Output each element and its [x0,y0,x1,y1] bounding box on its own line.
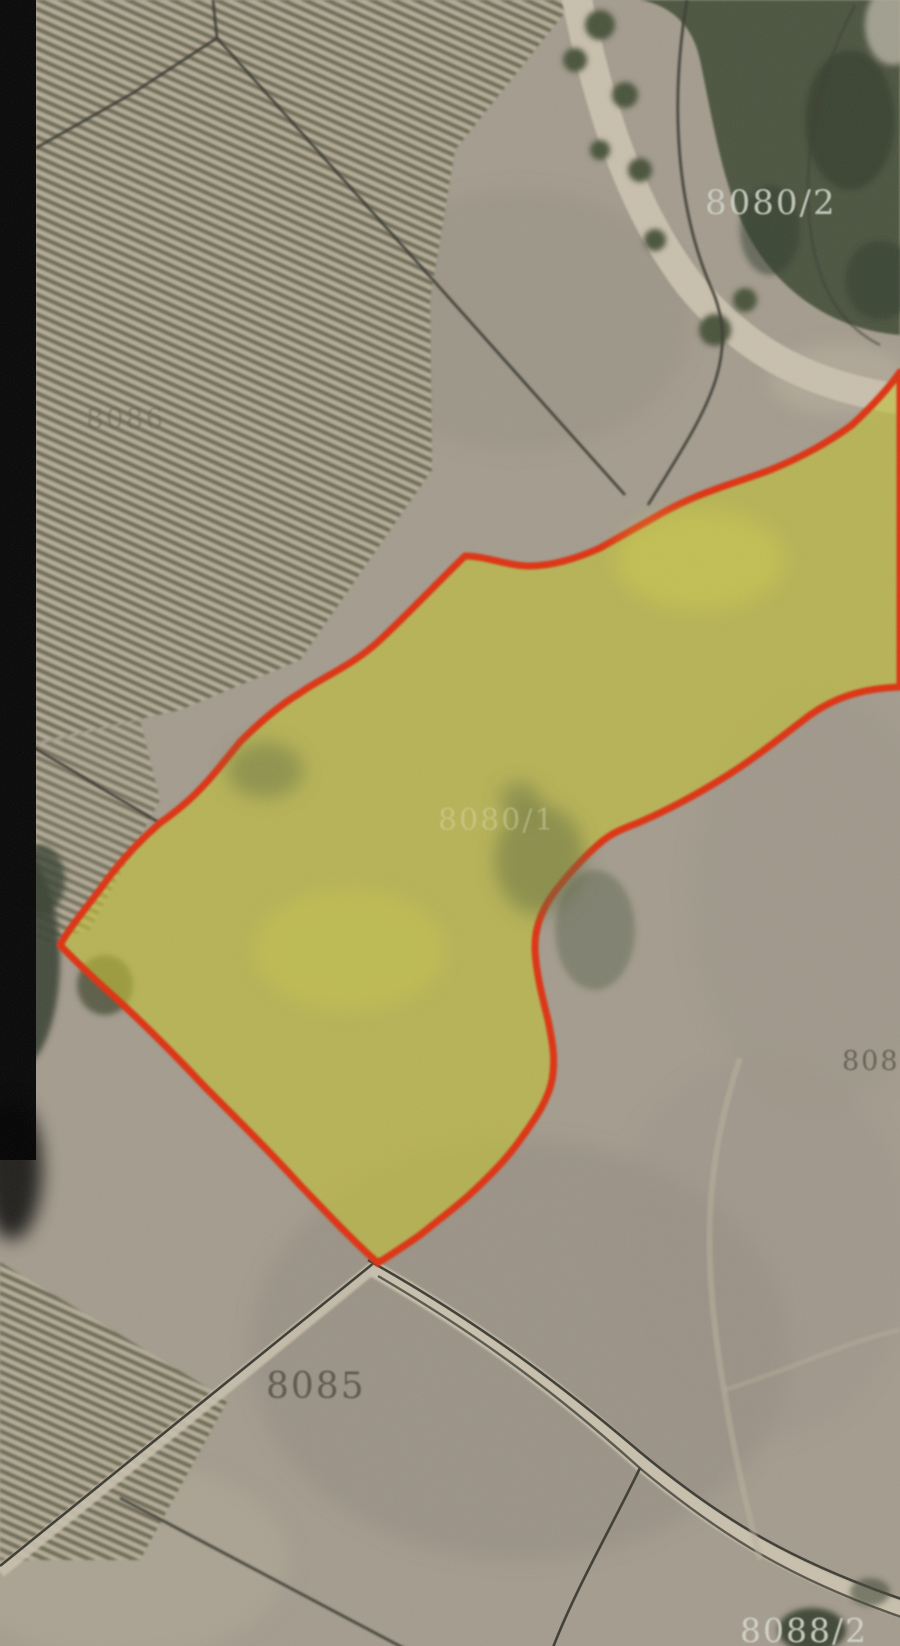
photo-grain [0,0,900,1646]
aerial-map-canvas[interactable]: 8080/2 8086 8080/1 8085 808 8088/2 [0,0,900,1646]
aerial-map[interactable]: 8080/2 8086 8080/1 8085 808 8088/2 [0,0,900,1646]
